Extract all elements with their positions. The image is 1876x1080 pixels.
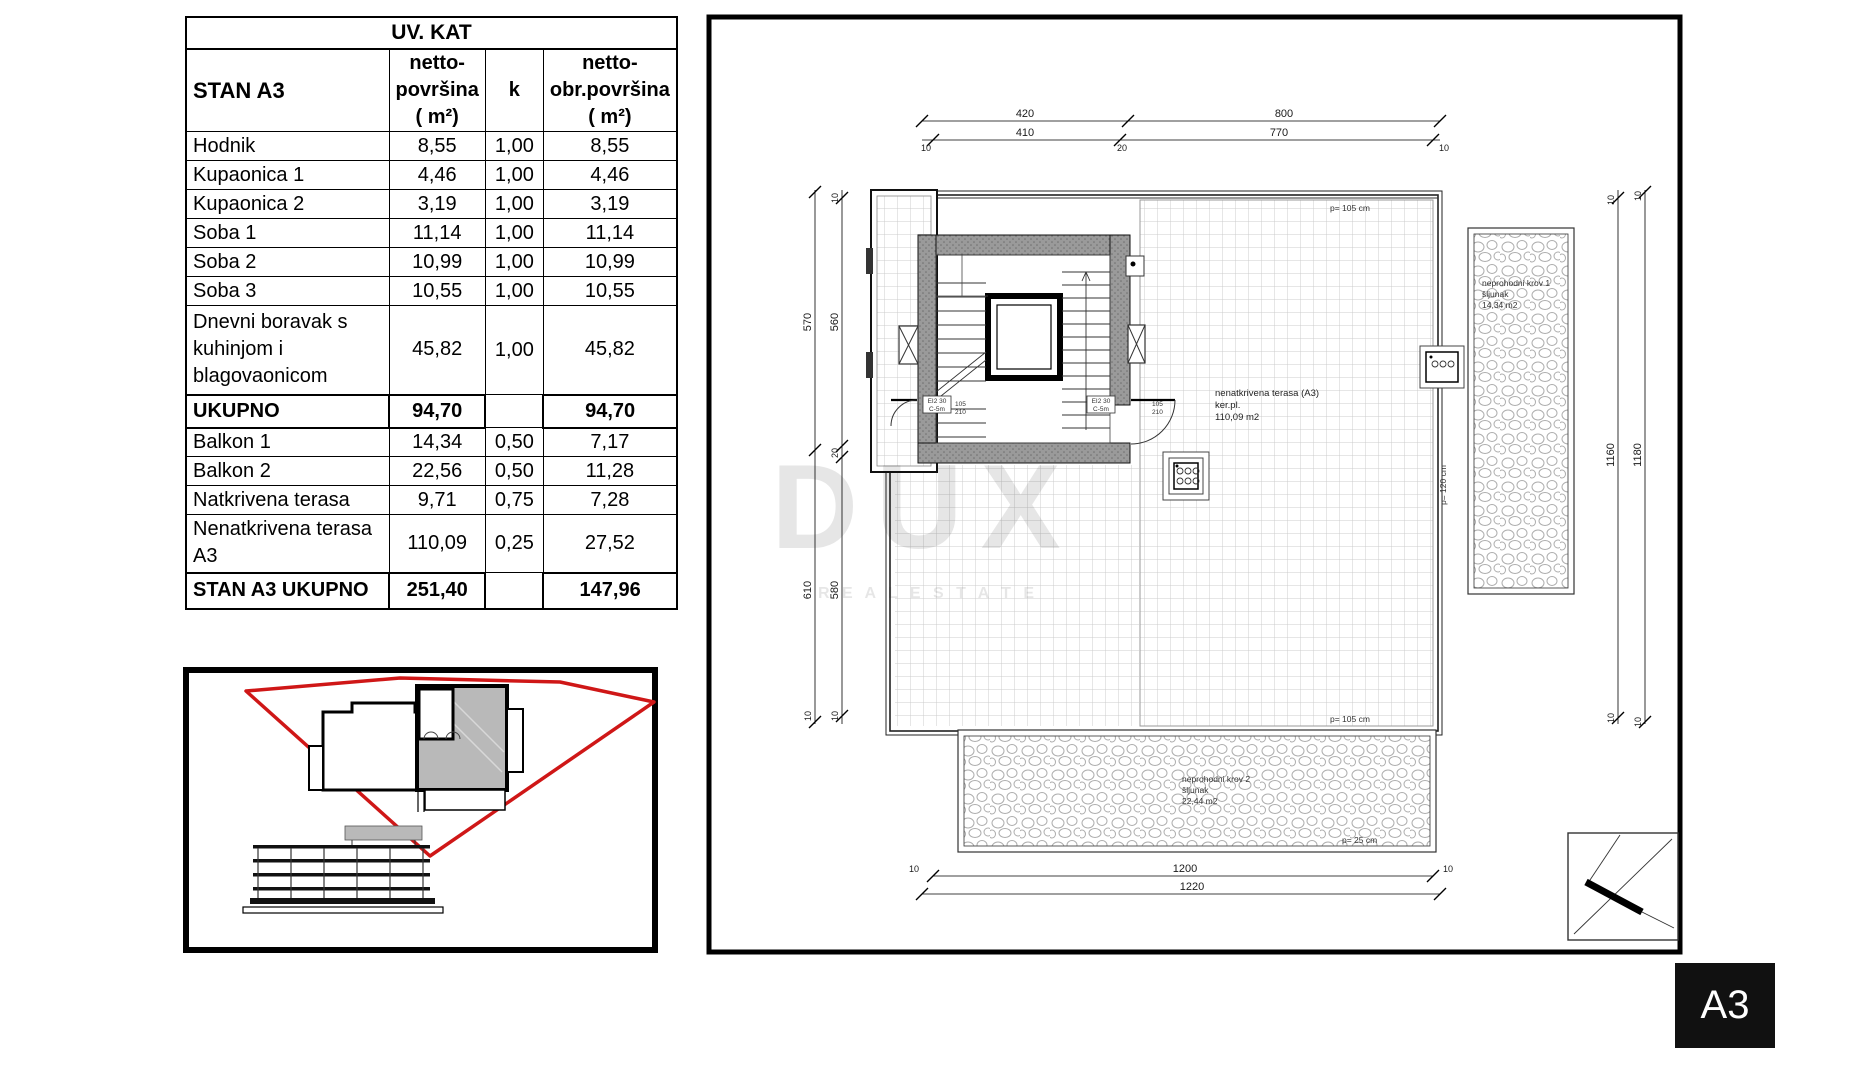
roof2-label: 22,44 m2 — [1182, 796, 1218, 806]
section-slab — [253, 873, 430, 877]
sheet-label: A3 — [1701, 983, 1750, 1028]
row-k: 1,00 — [485, 161, 543, 190]
row-name: Soba 3 — [186, 277, 389, 306]
row-name: Balkon 1 — [186, 428, 389, 457]
subtotal-k — [485, 395, 543, 428]
row-name: Natkrivena terasa — [186, 486, 389, 515]
row-netto: 10,99 — [389, 248, 485, 277]
col-header-netto: netto- površina ( m²) — [389, 49, 485, 132]
row-name: Kupaonica 1 — [186, 161, 389, 190]
dim-tick: 10 — [803, 711, 813, 721]
row-obr: 27,52 — [543, 515, 677, 573]
row-k: 0,50 — [485, 428, 543, 457]
total-name: STAN A3 UKUPNO — [186, 573, 389, 609]
dim-bottom-1200: 1200 — [1173, 863, 1197, 875]
row-netto: 45,82 — [389, 306, 485, 395]
gravel-roof-2: neprohodni krov 2 šljunak 22,44 m2 p= 25… — [958, 730, 1436, 852]
window-mark — [866, 352, 873, 378]
table-row: Hodnik 8,55 1,00 8,55 — [186, 132, 677, 161]
row-netto: 8,55 — [389, 132, 485, 161]
row-obr: 7,28 — [543, 486, 677, 515]
row-obr: 45,82 — [543, 306, 677, 395]
sheet: UV. KAT STAN A3 netto- površina ( m²) k … — [0, 0, 1876, 1080]
total-netto: 251,40 — [389, 573, 485, 609]
table-title-row: UV. KAT — [186, 17, 677, 49]
utility-box — [1163, 452, 1209, 500]
parapet-box — [1420, 346, 1464, 388]
roof-parapet-label: p= 25 cm — [1342, 835, 1377, 845]
section-slab — [253, 887, 430, 891]
table-row: Balkon 1 14,34 0,50 7,17 — [186, 428, 677, 457]
watermark-logo: DUX — [771, 440, 1078, 574]
building-entry-core — [419, 689, 453, 739]
dim-tick: 10 — [1439, 143, 1449, 153]
row-name: Soba 2 — [186, 248, 389, 277]
row-netto: 11,14 — [389, 219, 485, 248]
sheet-label-badge: A3 — [1675, 963, 1775, 1048]
row-name: Dnevni boravak s kuhinjom i blagovaonico… — [186, 306, 389, 395]
table-header-row: STAN A3 netto- površina ( m²) k netto- o… — [186, 49, 677, 132]
door-tag-text: EI2 30 — [1092, 398, 1111, 405]
dim-tick: 10 — [830, 711, 840, 721]
section-base-slab — [250, 898, 435, 904]
floor-plan: EI2 30 C-5m 105 210 EI2 30 C-5m 105 210 — [700, 10, 1690, 960]
row-obr: 7,17 — [543, 428, 677, 457]
row-obr: 4,46 — [543, 161, 677, 190]
roof1-label: 14,34 m2 — [1482, 300, 1518, 310]
dim-tick: 10 — [921, 143, 931, 153]
row-obr: 11,28 — [543, 457, 677, 486]
table-row: Natkrivena terasa 9,71 0,75 7,28 — [186, 486, 677, 515]
row-k: 1,00 — [485, 306, 543, 395]
subtotal-obr: 94,70 — [543, 395, 677, 428]
door-tag-text: C-5m — [929, 406, 945, 413]
dim-tick: 20 — [1117, 143, 1127, 153]
dim-bottom-1220: 1220 — [1180, 881, 1204, 893]
door-dim: 210 — [955, 409, 966, 416]
row-obr: 11,14 — [543, 219, 677, 248]
row-k: 0,75 — [485, 486, 543, 515]
total-obr: 147,96 — [543, 573, 677, 609]
roof1-label: šljunak — [1482, 289, 1509, 299]
section-slab — [253, 859, 430, 863]
dim-tick: 10 — [1633, 717, 1643, 727]
row-name: Hodnik — [186, 132, 389, 161]
door-dim: 210 — [1152, 409, 1163, 416]
dim-top-800: 800 — [1275, 108, 1293, 120]
row-k: 1,00 — [485, 190, 543, 219]
col-header-k: k — [485, 49, 543, 132]
terrace-label: 110,09 m2 — [1215, 412, 1259, 423]
table-row: Soba 2 10,99 1,00 10,99 — [186, 248, 677, 277]
roof1-label: neprohodni krov 1 — [1482, 278, 1550, 288]
subtotal-name: UKUPNO — [186, 395, 389, 428]
corner-symbol — [1568, 833, 1678, 940]
gravel-roof-1: neprohodni krov 1 šljunak 14,34 m2 — [1468, 228, 1574, 594]
section-roof-slab — [345, 826, 422, 840]
site-plan — [183, 667, 658, 957]
row-k: 1,00 — [485, 248, 543, 277]
door-tag-text: C-5m — [1093, 406, 1109, 413]
dim-tick: 10 — [909, 864, 919, 874]
table-row: Nenatkrivena terasa A3 110,09 0,25 27,52 — [186, 515, 677, 573]
roof2-label: šljunak — [1182, 785, 1209, 795]
door-dim: 105 — [955, 401, 966, 408]
subtotal-netto: 94,70 — [389, 395, 485, 428]
column-marker — [1128, 325, 1145, 363]
table-row: Kupaonica 2 3,19 1,00 3,19 — [186, 190, 677, 219]
dim-tick: 10 — [1443, 864, 1453, 874]
row-obr: 10,55 — [543, 277, 677, 306]
table-row: Kupaonica 1 4,46 1,00 4,46 — [186, 161, 677, 190]
watermark-subtext: R E A L E S T A T E — [818, 585, 1038, 602]
row-k: 0,25 — [485, 515, 543, 573]
row-name: Nenatkrivena terasa A3 — [186, 515, 389, 573]
row-netto: 3,19 — [389, 190, 485, 219]
parapet-label-top: p= 105 cm — [1330, 203, 1370, 213]
dim-tick: 10 — [1633, 191, 1643, 201]
area-table: UV. KAT STAN A3 netto- površina ( m²) k … — [185, 16, 678, 610]
table-row: Dnevni boravak s kuhinjom i blagovaonico… — [186, 306, 677, 395]
door-dim: 105 — [1152, 401, 1163, 408]
row-obr: 10,99 — [543, 248, 677, 277]
dim-left-560: 560 — [829, 313, 841, 331]
dim-tick: 10 — [1606, 713, 1616, 723]
building-footprint-white — [323, 703, 417, 790]
dim-top-420: 420 — [1016, 108, 1034, 120]
table-subtotal-row: UKUPNO 94,70 94,70 — [186, 395, 677, 428]
row-netto: 9,71 — [389, 486, 485, 515]
terrace-label: ker.pl. — [1215, 400, 1240, 411]
col-header-stan: STAN A3 — [186, 49, 389, 132]
row-netto: 4,46 — [389, 161, 485, 190]
row-k: 1,00 — [485, 132, 543, 161]
elevator-shaft — [988, 296, 1060, 378]
row-netto: 10,55 — [389, 277, 485, 306]
wall-top — [918, 235, 1130, 255]
building-annex-left — [309, 746, 323, 790]
row-obr: 3,19 — [543, 190, 677, 219]
building-annex-right — [507, 709, 523, 772]
row-obr: 8,55 — [543, 132, 677, 161]
table-row: Soba 3 10,55 1,00 10,55 — [186, 277, 677, 306]
table-total-row: STAN A3 UKUPNO 251,40 147,96 — [186, 573, 677, 609]
roof2-label: neprohodni krov 2 — [1182, 774, 1250, 784]
total-k — [485, 573, 543, 609]
table-row: Balkon 2 22,56 0,50 11,28 — [186, 457, 677, 486]
row-k: 1,00 — [485, 277, 543, 306]
row-k: 1,00 — [485, 219, 543, 248]
dim-tick: 10 — [1606, 195, 1616, 205]
parapet-label-right: p= 120 cm — [1438, 465, 1448, 505]
dim-top-410: 410 — [1016, 127, 1034, 139]
dim-right-1180: 1180 — [1632, 443, 1644, 467]
door-tag-text: EI2 30 — [928, 398, 947, 405]
row-k: 0,50 — [485, 457, 543, 486]
building-lower-part — [425, 790, 505, 810]
table-title: UV. KAT — [186, 17, 677, 49]
window-mark — [866, 248, 873, 274]
dim-tick: 10 — [830, 193, 840, 203]
dim-right-1160: 1160 — [1605, 443, 1617, 467]
row-netto: 110,09 — [389, 515, 485, 573]
row-name: Balkon 2 — [186, 457, 389, 486]
row-name: Soba 1 — [186, 219, 389, 248]
dim-left-570: 570 — [802, 313, 814, 331]
row-netto: 22,56 — [389, 457, 485, 486]
section-slab — [253, 845, 430, 849]
section-foundation — [243, 907, 443, 913]
wall-junction-box — [1126, 256, 1144, 276]
terrace-label: nenatkrivena terasa (A3) — [1215, 388, 1319, 399]
dim-top-770: 770 — [1270, 127, 1288, 139]
row-netto: 14,34 — [389, 428, 485, 457]
parapet-label-bottom: p= 105 cm — [1330, 714, 1370, 724]
row-name: Kupaonica 2 — [186, 190, 389, 219]
dim-left-610: 610 — [802, 581, 814, 599]
wall-left — [918, 235, 936, 463]
col-header-obr: netto- obr.površina ( m²) — [543, 49, 677, 132]
table-row: Soba 1 11,14 1,00 11,14 — [186, 219, 677, 248]
column-marker — [899, 326, 918, 364]
